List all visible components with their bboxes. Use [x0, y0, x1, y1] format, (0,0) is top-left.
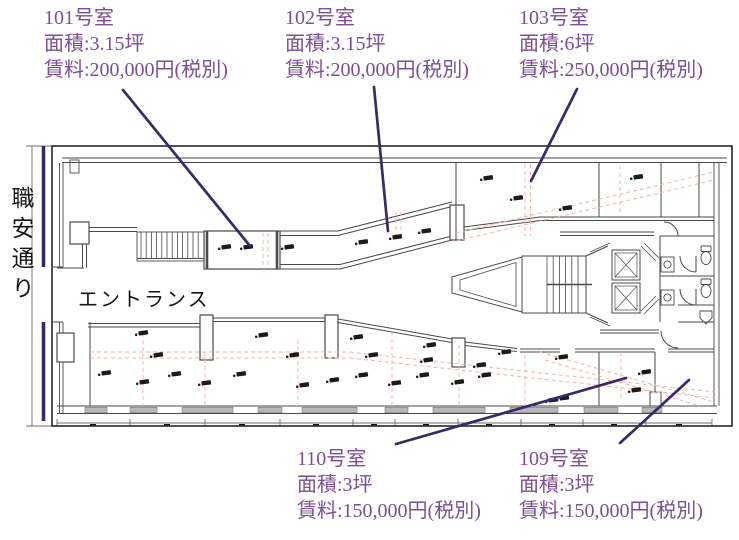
street-name-label: 職安通り [3, 186, 37, 306]
unit-label-101: 101号室 面積:3.15坪 賃料:200,000円(税別) [44, 5, 228, 83]
window [258, 407, 282, 412]
fixture-marker [477, 372, 491, 378]
fixture-marker [134, 330, 148, 336]
unit-110-room: 110号室 [297, 446, 481, 472]
unit-101-area: 面積:3.15坪 [44, 31, 228, 57]
window [182, 407, 233, 412]
door-arc [680, 256, 696, 272]
fixture-marker [450, 379, 464, 385]
washbasin-icon [661, 257, 674, 272]
fixture-marker [135, 379, 149, 385]
unit-110-rent: 賃料:150,000円(税別) [297, 498, 481, 524]
fixture-marker [415, 372, 429, 378]
unit-109-room: 109号室 [519, 446, 703, 472]
leader-room-101 [123, 90, 250, 246]
fixture-marker [364, 352, 378, 358]
door-arc [680, 289, 696, 305]
fixture-marker [285, 352, 299, 358]
unit-101-rent: 賃料:200,000円(税別) [44, 57, 228, 83]
unit-103-area: 面積:6坪 [519, 31, 703, 57]
fixture-marker [388, 234, 402, 240]
unit-101-room: 101号室 [44, 5, 228, 31]
fixture-marker [472, 362, 486, 368]
unit-102-rent: 賃料:200,000円(税別) [285, 57, 469, 83]
elevator-door-marks [641, 243, 659, 314]
door-arc [664, 222, 678, 236]
leader-room-103 [531, 89, 577, 181]
elevator-icon [612, 283, 640, 313]
staircase-upper [137, 232, 204, 261]
unit-label-103: 103号室 面積:6坪 賃料:250,000円(税別) [519, 5, 703, 83]
fixture-marker [167, 371, 181, 377]
fixture-marker [629, 174, 643, 180]
fixture-marker [97, 370, 111, 376]
unit-label-102: 102号室 面積:3.15坪 賃料:200,000円(税別) [285, 5, 469, 83]
fixture-marker [232, 371, 246, 377]
entrance-label: エントランス [78, 283, 210, 312]
window [584, 407, 618, 412]
fixture-marker [354, 239, 368, 245]
unit-103-room: 103号室 [519, 5, 703, 31]
unit-102-area: 面積:3.15坪 [285, 31, 469, 57]
fixture-marker [422, 342, 436, 348]
floorplan-page: { "street": { "label": "職安通り" }, "plan":… [0, 0, 739, 540]
fixture-marker [239, 244, 253, 250]
elevator-icon [612, 250, 640, 280]
unit-label-110: 110号室 面積:3坪 賃料:150,000円(税別) [297, 446, 481, 524]
fixture-marker [387, 380, 401, 386]
fixture-marker [217, 244, 231, 250]
fixture-marker [197, 380, 211, 386]
unit-label-109: 109号室 面積:3坪 賃料:150,000円(税別) [519, 446, 703, 524]
unit-103-rent: 賃料:250,000円(税別) [519, 57, 703, 83]
unit-109-rent: 賃料:150,000円(税別) [519, 498, 703, 524]
fixture-marker [325, 377, 339, 383]
lower-band-walls [57, 315, 714, 406]
window [130, 407, 157, 412]
fixture-marker [417, 228, 431, 234]
washbasin-icon [661, 290, 674, 305]
fixture-marker [254, 332, 268, 338]
unit-102-room: 102号室 [285, 5, 469, 31]
core-stair [452, 243, 610, 326]
fixture-marker [149, 352, 163, 358]
fixture-marker [280, 244, 294, 250]
fixture-marker [509, 195, 523, 201]
fixture-marker [627, 387, 641, 393]
window [85, 407, 107, 412]
fixture-marker [349, 334, 363, 340]
window [385, 407, 408, 412]
leader-room-102 [374, 87, 388, 231]
door-arc [661, 331, 678, 348]
elevators [612, 243, 659, 314]
unit-110-area: 面積:3坪 [297, 472, 481, 498]
unit-109-area: 面積:3坪 [519, 472, 703, 498]
fixture-marker [479, 175, 493, 181]
toilet-icon [701, 246, 711, 265]
fixture-marker [354, 372, 368, 378]
fixture-marker [637, 369, 651, 375]
window [302, 407, 357, 412]
window [433, 407, 485, 412]
toilet-icon [701, 279, 711, 298]
windows [85, 407, 662, 412]
